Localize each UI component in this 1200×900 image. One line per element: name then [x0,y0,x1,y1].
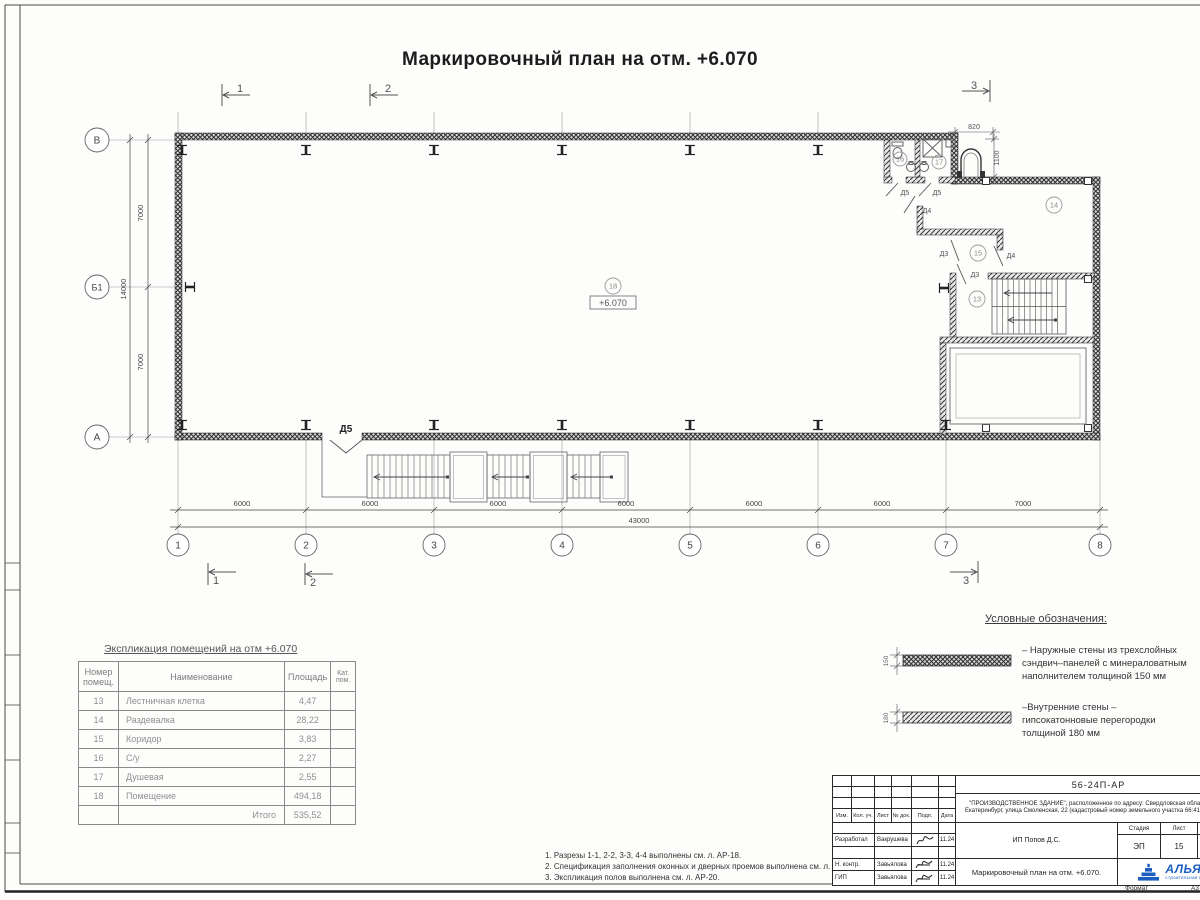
dim-label: 7000 [136,354,145,371]
dim-ticks-left [127,137,151,440]
stamp-col-doc: № док. [892,809,912,823]
room-area: 494,18 [285,787,331,806]
section-marks [208,80,990,585]
stamp-col-koluch: Кол. уч. [852,809,875,823]
room-num: 13 [79,692,119,711]
legend-thickness: 180 [883,712,890,723]
sink [920,163,929,172]
axis-label: 8 [1097,541,1103,552]
client: ИП Попов Д.С. [956,823,1118,859]
axis-label: Б1 [92,283,103,293]
table-row: 16 С/у 2,27 [79,749,356,768]
col-num: Номер помещ. [79,662,119,692]
explication-header-row: Номер помещ. Наименование Площадь Кат. п… [79,662,356,692]
exterior-stairs [322,440,628,502]
explication-title: Экспликация помещений на отм +6.070 [104,643,297,655]
frame-left-strip [5,563,20,853]
column-plates [983,178,1092,432]
section-label: 3 [971,80,977,92]
legend-symbols: 150 180 [883,647,1011,732]
room-tag: 15 [974,249,982,258]
axis-label: 5 [687,541,693,552]
col-cat: Кат. пом. [331,662,356,692]
col-area: Площадь [285,662,331,692]
room-name: С/у [119,749,285,768]
interior-stairs [992,279,1066,334]
room-area: 3,83 [285,730,331,749]
col-name: Наименование [119,662,285,692]
dim-total-label: 43000 [629,516,650,525]
total-area: 535,52 [285,806,331,825]
table-row: 14 Раздевалка 28,22 [79,711,356,730]
section-label: 3 [963,575,969,587]
room-area: 28,22 [285,711,331,730]
sheet-label: Лист [1161,823,1198,835]
table-row: 15 Коридор 3,83 [79,730,356,749]
room-tag: 18 [609,282,617,291]
legend-title: Условные обозначения: [985,613,1107,625]
stamp-name: Завьялова [875,859,912,871]
axis-label: 1 [175,541,181,552]
table-row: 13 Лестничная клетка 4,47 [79,692,356,711]
door-label: Д3 [971,272,980,279]
dim-label: 6000 [234,499,251,508]
dim-label: 6000 [874,499,891,508]
axis-label: 2 [303,541,309,552]
axis-label: 6 [815,541,821,552]
sheet-title: Маркировочный план на отм. +6.070. [956,859,1118,885]
format-label: Формат [1125,885,1148,892]
explication-table: Номер помещ. Наименование Площадь Кат. п… [78,661,356,825]
logo-triangle-icon [1137,863,1161,882]
note-line: 1. Разрезы 1-1, 2-2, 3-3, 4-4 выполнены … [545,850,857,861]
stamp-name: Завьялова [875,871,912,885]
stamp-col-list: Лист [875,809,892,823]
small-dim-labels: 820 1100 [968,124,1001,166]
stage-label: Стадия [1118,823,1161,835]
notes-block: 1. Разрезы 1-1, 2-2, 3-3, 4-4 выполнены … [545,850,857,883]
drawing-sheet: { "sheet": { "title": "Маркировочный пла… [0,0,1200,900]
dim-label: 6000 [746,499,763,508]
company-subtitle: строительная компания [1165,875,1200,880]
exterior-opening-arch [957,149,985,178]
section-label: 1 [213,575,219,587]
stamp-col-podp: Подп. [912,809,939,823]
signature [912,871,939,885]
door-label: Д3 [940,251,949,258]
room-name: Душевая [119,768,285,787]
room-name: Раздевалка [119,711,285,730]
stamp-date: 11.24 [939,834,956,847]
stamp-role: ГИП [833,871,875,885]
stage-value: ЭП [1118,835,1161,859]
section-label: 2 [310,577,316,589]
room-cat [331,730,356,749]
room-tag: 16 [896,155,904,164]
dim-label: 6000 [618,499,635,508]
dim-opening-height: 1100 [994,150,1001,165]
stamp-col-izm: Изм. [833,809,852,823]
note-line: 3. Экспликация полов выполнена см. л. АР… [545,872,857,883]
stamp-date: 11.24 [939,859,956,871]
signature [912,834,939,847]
format-value: А3 [1191,885,1199,892]
room-num: 16 [79,749,119,768]
room-cat [331,787,356,806]
section-label: 2 [385,83,391,95]
project-description: "ПРОИЗВОДСТВЕННОЕ ЗДАНИЕ", расположенное… [956,794,1200,823]
toilet-tank [892,142,903,146]
sink [907,163,916,172]
dim-label: 6000 [490,499,507,508]
blank-cell [331,806,356,825]
signature [912,859,939,871]
room-tag: 14 [1050,201,1058,210]
room-area: 2,55 [285,768,331,787]
room-tag: 13 [973,295,981,304]
axis-label: 4 [559,541,565,552]
elevation-mark: +6.070 [599,298,627,308]
stamp-col-data: Дата [939,809,956,823]
legend-item-text: – Наружные стены из трехслойных сэндвич–… [1022,644,1194,683]
stamp-role: Разработал [833,834,875,847]
door-swing-d5 [330,440,362,453]
sheet-number: 15 [1161,835,1198,859]
room-num: 18 [79,787,119,806]
door-labels: Д5 Д5 Д4 Д3 Д4 Д3 Д5 [340,190,1016,435]
door-label: Д4 [1007,253,1016,260]
door-label: Д4 [923,208,932,215]
stamp-date: 11.24 [939,871,956,885]
room-num: 17 [79,768,119,787]
door-leaves [330,183,1003,453]
room-cat [331,692,356,711]
legend-thickness: 150 [883,655,890,666]
room-cat [331,768,356,787]
room-name: Лестничная клетка [119,692,285,711]
axis-label: А [94,433,101,444]
door-label: Д5 [901,190,910,197]
table-row: 18 Помещение 494,18 [79,787,356,806]
company-name: АЛЬЯНС [1165,864,1200,875]
axis-bubble-labels-left: В Б1 А [92,136,103,444]
dim-opening-width: 820 [968,124,980,131]
room-cat [331,711,356,730]
blank-cell [79,806,119,825]
door-label-d5-main: Д5 [340,424,353,435]
axis-label: 3 [431,541,437,552]
dim-label: 6000 [362,499,379,508]
section-label: 1 [237,83,243,95]
dim-label: 7000 [1015,499,1032,508]
dimension-lines [127,134,1108,530]
outer-walls [175,133,1100,440]
note-line: 2. Спецификация заполнения оконных и две… [545,861,857,872]
room-tag: 17 [935,158,943,167]
total-label: Итого [119,806,285,825]
table-total-row: Итого 535,52 [79,806,356,825]
room-name: Коридор [119,730,285,749]
dim-label: 7000 [136,205,145,222]
axis-label: В [94,136,101,147]
room-name: Помещение [119,787,285,806]
table-row: 17 Душевая 2,55 [79,768,356,787]
room-num: 14 [79,711,119,730]
room-area: 2,27 [285,749,331,768]
room-area: 4,47 [285,692,331,711]
section-mark-labels: 1 2 3 1 2 3 [213,80,977,589]
title-block: Изм. Кол. уч. Лист № док. Подп. Дата Раз… [832,775,1200,886]
axis-label: 7 [943,541,949,552]
door-label: Д5 [933,190,942,197]
dim-total-label: 14000 [119,279,128,300]
doc-number: 56-24П-АР [956,776,1200,794]
stair-arrows [374,474,613,480]
floor-opening [950,348,1086,424]
legend-item-text: –Внутренние стены – гипсокатонновые пере… [1022,701,1194,740]
stamp-name: Вакрушева [875,834,912,847]
stamp-role: Н. контр. [833,859,875,871]
company-logo: АЛЬЯНС строительная компания [1118,859,1200,885]
page-title: Маркировочный план на отм. +6.070 [300,49,860,71]
room-cat [331,749,356,768]
room-num: 15 [79,730,119,749]
